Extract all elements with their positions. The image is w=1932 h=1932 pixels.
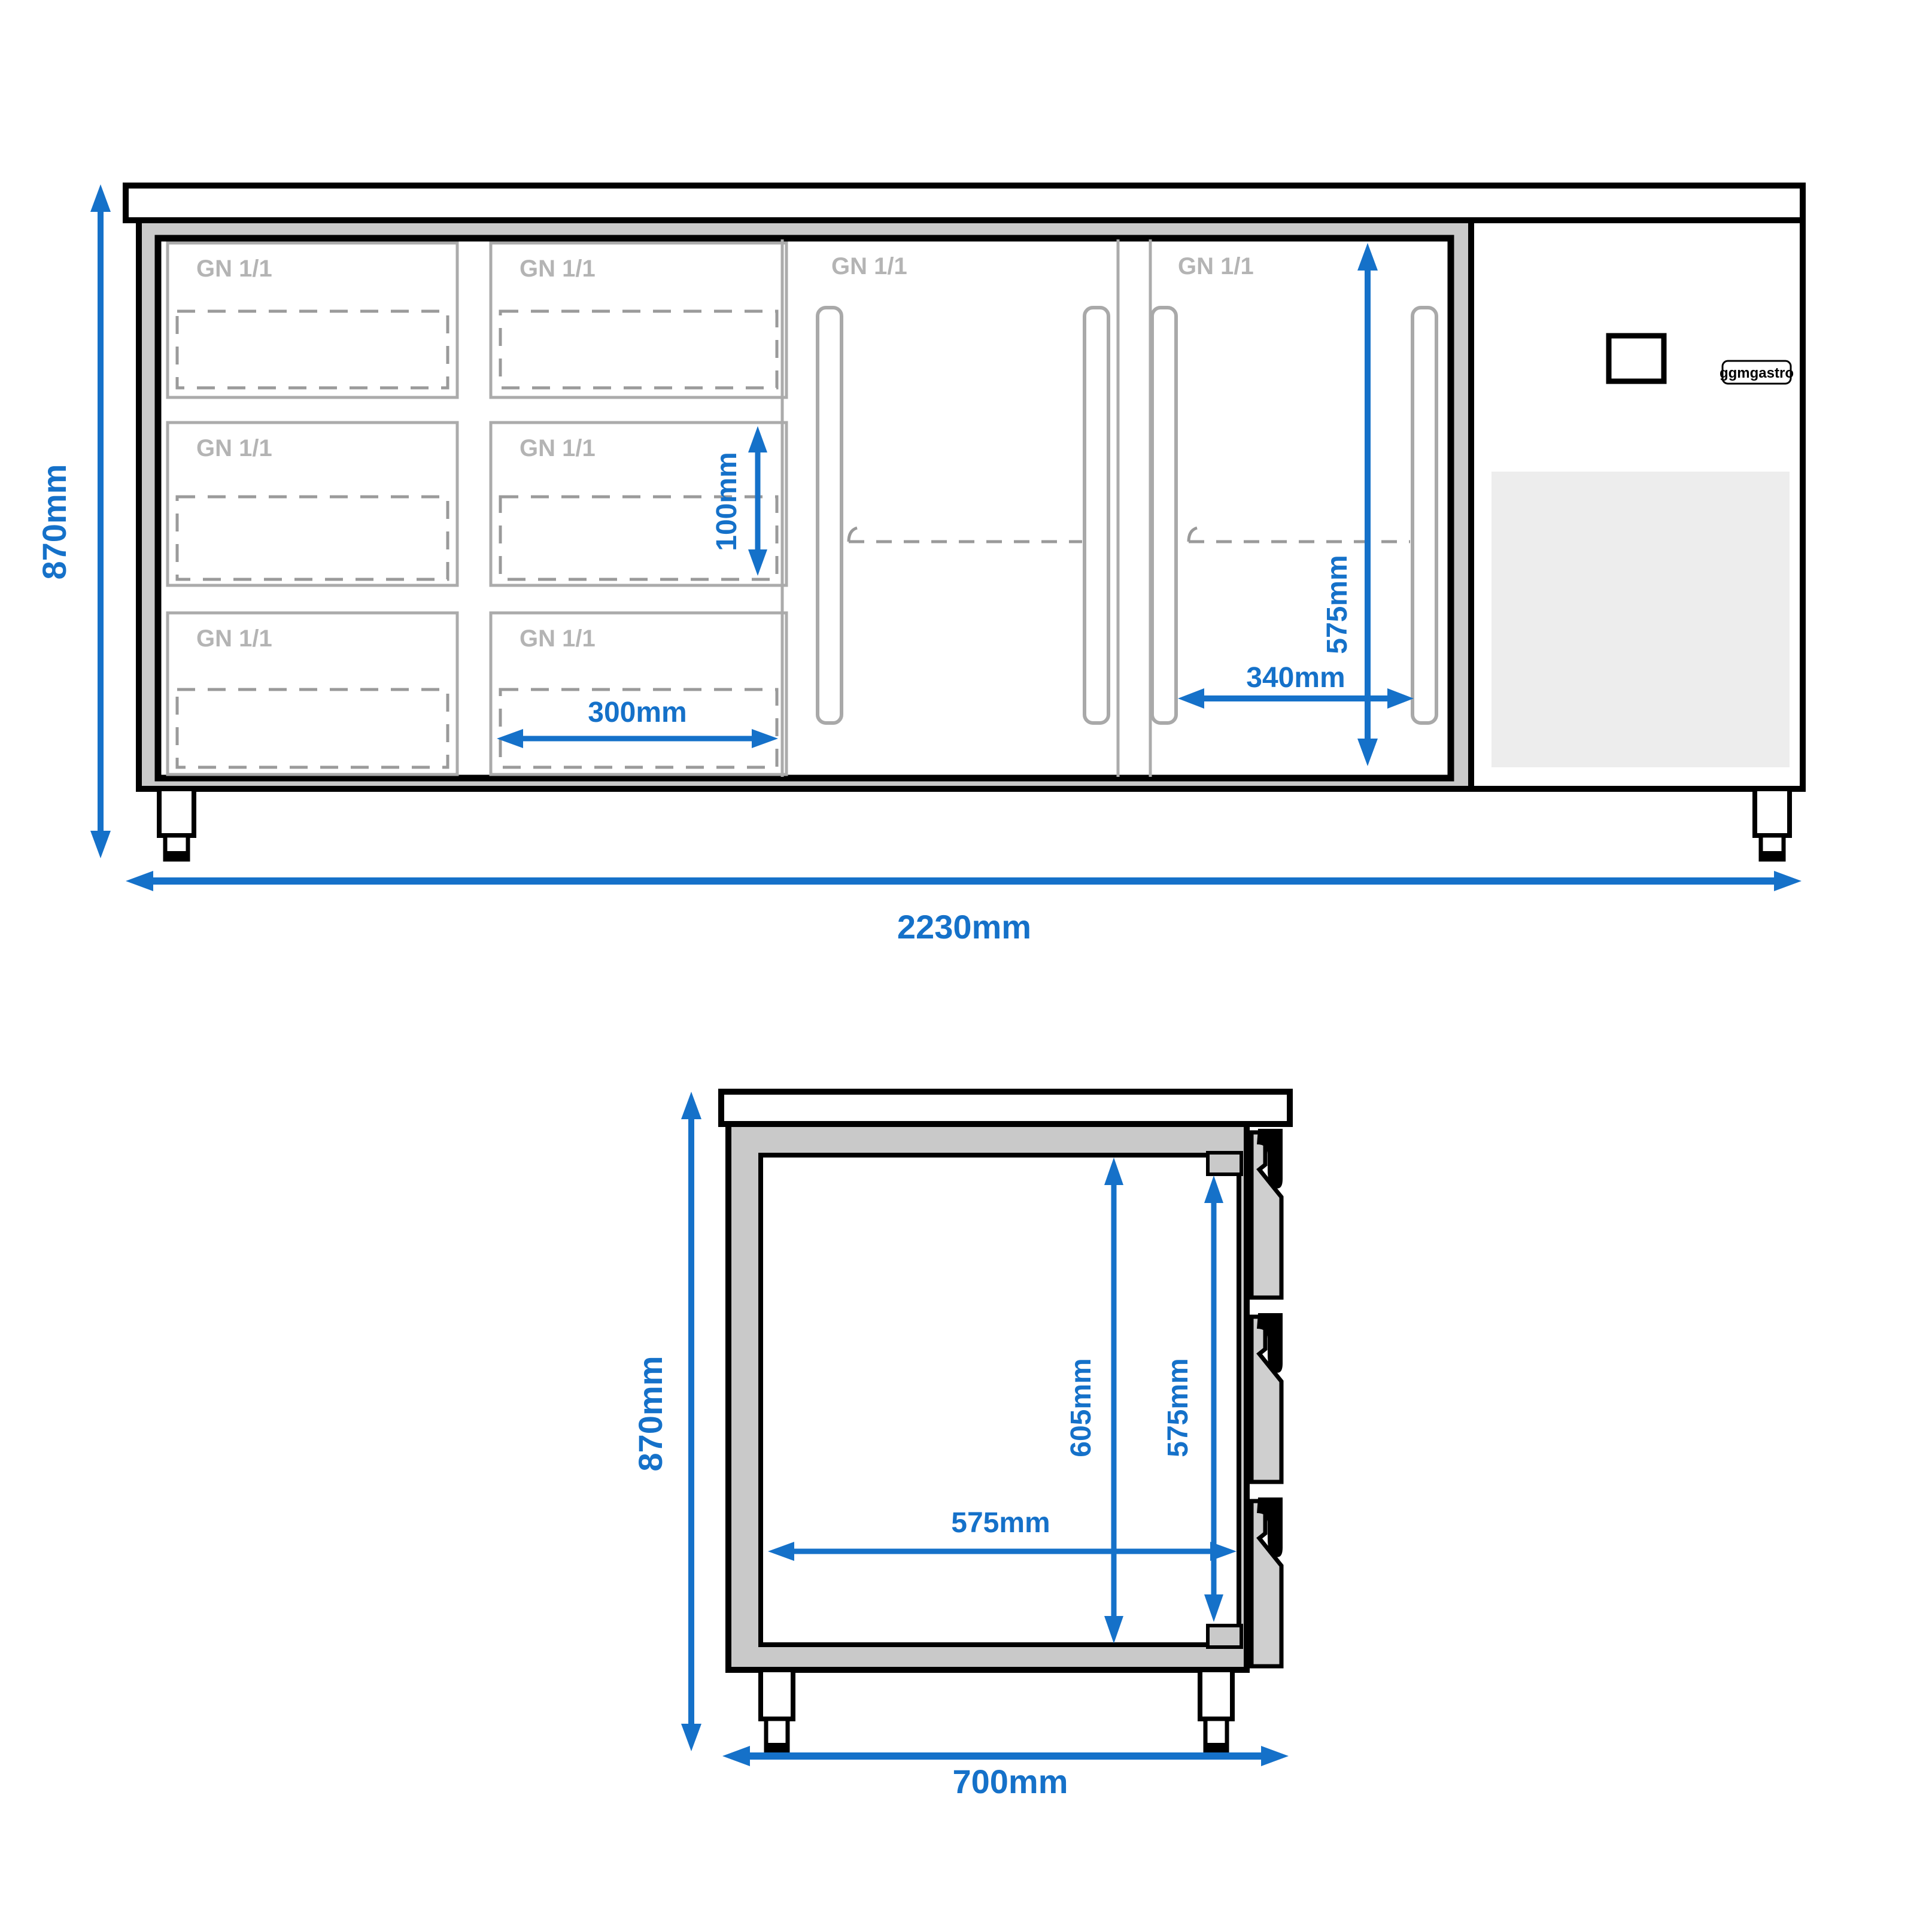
door1-right-handle xyxy=(1085,308,1108,723)
front-right-leg xyxy=(1755,789,1790,859)
arrowhead-up xyxy=(90,184,111,212)
arrowhead-down xyxy=(681,1724,701,1751)
side-left-leg xyxy=(761,1670,793,1751)
dim-label: 870mm xyxy=(35,464,73,579)
dim-front-height: 870mm xyxy=(35,184,111,858)
door2-left-handle xyxy=(1152,308,1176,723)
gn-cell-label: GN 1/1 xyxy=(1178,253,1254,280)
arrowhead-left xyxy=(722,1746,750,1766)
arrowhead-down xyxy=(90,831,111,858)
leg-foot-pad xyxy=(166,851,187,859)
gn-cell-col1-row3: GN 1/1 xyxy=(168,613,457,774)
arrowhead-right xyxy=(1261,1746,1289,1766)
dim-side-height: 870mm xyxy=(631,1092,701,1751)
gn-cell-col1-row2: GN 1/1 xyxy=(168,423,457,585)
arrowhead-up xyxy=(681,1092,701,1119)
front-view: GN 1/1 GN 1/1 GN 1/1 GN 1/1 GN 1/1 GN 1/… xyxy=(35,184,1803,946)
gn-cell-label: GN 1/1 xyxy=(196,625,272,652)
side-right-leg xyxy=(1200,1670,1232,1751)
gn-cell-col2-row1: GN 1/1 xyxy=(491,243,786,397)
side-top-right-step xyxy=(1208,1153,1241,1174)
leg-foot-pad xyxy=(767,1743,786,1751)
dim-label: 575mm xyxy=(1322,555,1353,654)
front-left-leg xyxy=(159,789,194,859)
leg-upper xyxy=(1755,789,1790,836)
gn-cell-label: GN 1/1 xyxy=(196,256,272,282)
dim-label: 100mm xyxy=(711,452,743,551)
gn-cell-label: GN 1/1 xyxy=(831,253,907,280)
leg-upper xyxy=(1200,1670,1232,1719)
arrowhead-left xyxy=(126,871,153,891)
dim-label: 605mm xyxy=(1065,1358,1097,1457)
dim-side-depth: 700mm xyxy=(722,1746,1289,1800)
refrigerated-counter-drawing: GN 1/1 GN 1/1 GN 1/1 GN 1/1 GN 1/1 GN 1/… xyxy=(0,0,1932,1932)
dim-label: 300mm xyxy=(588,697,686,728)
gn-cell-label: GN 1/1 xyxy=(520,256,596,282)
side-drawer-2 xyxy=(1251,1313,1283,1482)
control-panel xyxy=(1609,336,1664,381)
gn-cell-col1-row1: GN 1/1 xyxy=(168,243,457,397)
side-drawer-3 xyxy=(1251,1497,1283,1666)
gn-cell-label: GN 1/1 xyxy=(196,435,272,461)
side-countertop xyxy=(721,1092,1290,1124)
dim-front-width: 2230mm xyxy=(126,871,1802,946)
side-view: 870mm 700mm 605mm 575mm 575m xyxy=(631,1092,1290,1800)
side-drawer-1 xyxy=(1251,1129,1283,1298)
dim-label: 700mm xyxy=(952,1763,1068,1800)
front-countertop xyxy=(126,186,1803,220)
door1-left-handle xyxy=(818,308,842,723)
leg-foot-pad xyxy=(1762,851,1782,859)
dim-label: 575mm xyxy=(951,1507,1050,1539)
side-bottom-right-step xyxy=(1208,1626,1241,1647)
technical-drawing-page: GN 1/1 GN 1/1 GN 1/1 GN 1/1 GN 1/1 GN 1/… xyxy=(0,0,1932,1932)
dim-label: 2230mm xyxy=(897,908,1031,946)
brand-badge-label: ggmgastro xyxy=(1720,365,1794,381)
dim-label: 870mm xyxy=(631,1356,669,1471)
dim-label: 340mm xyxy=(1246,662,1345,694)
compressor-vent-panel xyxy=(1491,472,1790,767)
leg-upper xyxy=(761,1670,793,1719)
arrowhead-right xyxy=(1774,871,1802,891)
leg-upper xyxy=(159,789,194,836)
door2-right-handle xyxy=(1412,308,1436,723)
gn-cell-label: GN 1/1 xyxy=(520,435,596,461)
gn-cell-label: GN 1/1 xyxy=(520,625,596,652)
gn-cell-col2-row3: GN 1/1 xyxy=(491,613,786,774)
leg-foot-pad xyxy=(1207,1743,1226,1751)
dim-label: 575mm xyxy=(1162,1358,1194,1457)
